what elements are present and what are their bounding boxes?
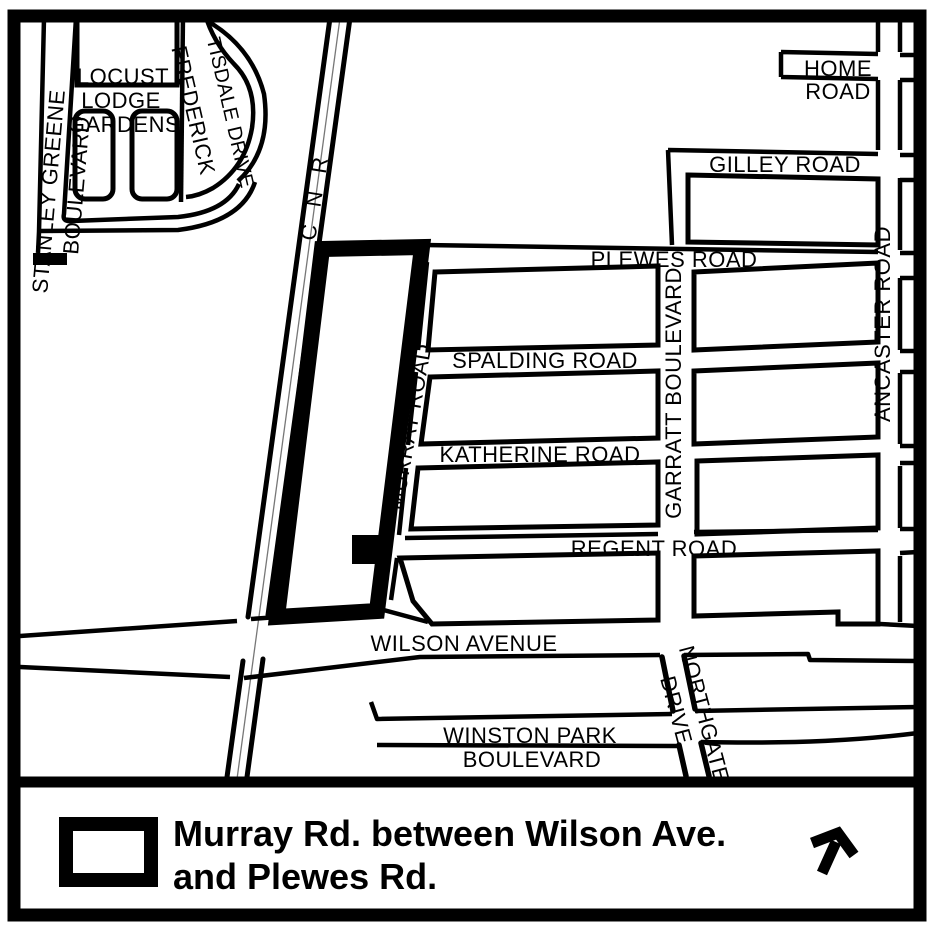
- road-label-garratt: GARRATT BOULEVARD: [661, 267, 686, 519]
- block: [694, 551, 878, 624]
- block: [411, 462, 658, 529]
- road-label-ancaster: ANCASTER ROAD: [870, 226, 895, 422]
- block: [694, 363, 878, 444]
- street-map-svg: LOCUST LODGE GARDENS STANLEY GREENE BOUL…: [0, 0, 934, 933]
- road-label-locust-2: LODGE: [81, 88, 161, 113]
- highlight-notch: [352, 535, 381, 564]
- road-label-gilley: GILLEY ROAD: [709, 152, 861, 177]
- road-label-locust-1: LOCUST: [77, 64, 169, 89]
- road-label-winston-1: WINSTON PARK: [443, 723, 617, 748]
- legend-caption-line2: and Plewes Rd.: [173, 856, 437, 897]
- road-label-regent: REGENT ROAD: [571, 536, 737, 561]
- road-label-home-1: HOME: [804, 56, 872, 81]
- road-label-winston-2: BOULEVARD: [463, 747, 602, 772]
- road-label-spalding: SPALDING ROAD: [452, 348, 638, 373]
- block: [697, 455, 878, 534]
- block: [428, 266, 658, 350]
- map-figure: LOCUST LODGE GARDENS STANLEY GREENE BOUL…: [0, 0, 934, 933]
- legend-caption-line1: Murray Rd. between Wilson Ave.: [173, 813, 726, 854]
- road-label-wilson: WILSON AVENUE: [370, 631, 557, 656]
- block: [694, 263, 878, 350]
- road-label-home-2: ROAD: [805, 79, 871, 104]
- block: [400, 553, 658, 624]
- block: [688, 175, 878, 245]
- block: [421, 371, 658, 444]
- road-label-katherine: KATHERINE ROAD: [440, 442, 641, 467]
